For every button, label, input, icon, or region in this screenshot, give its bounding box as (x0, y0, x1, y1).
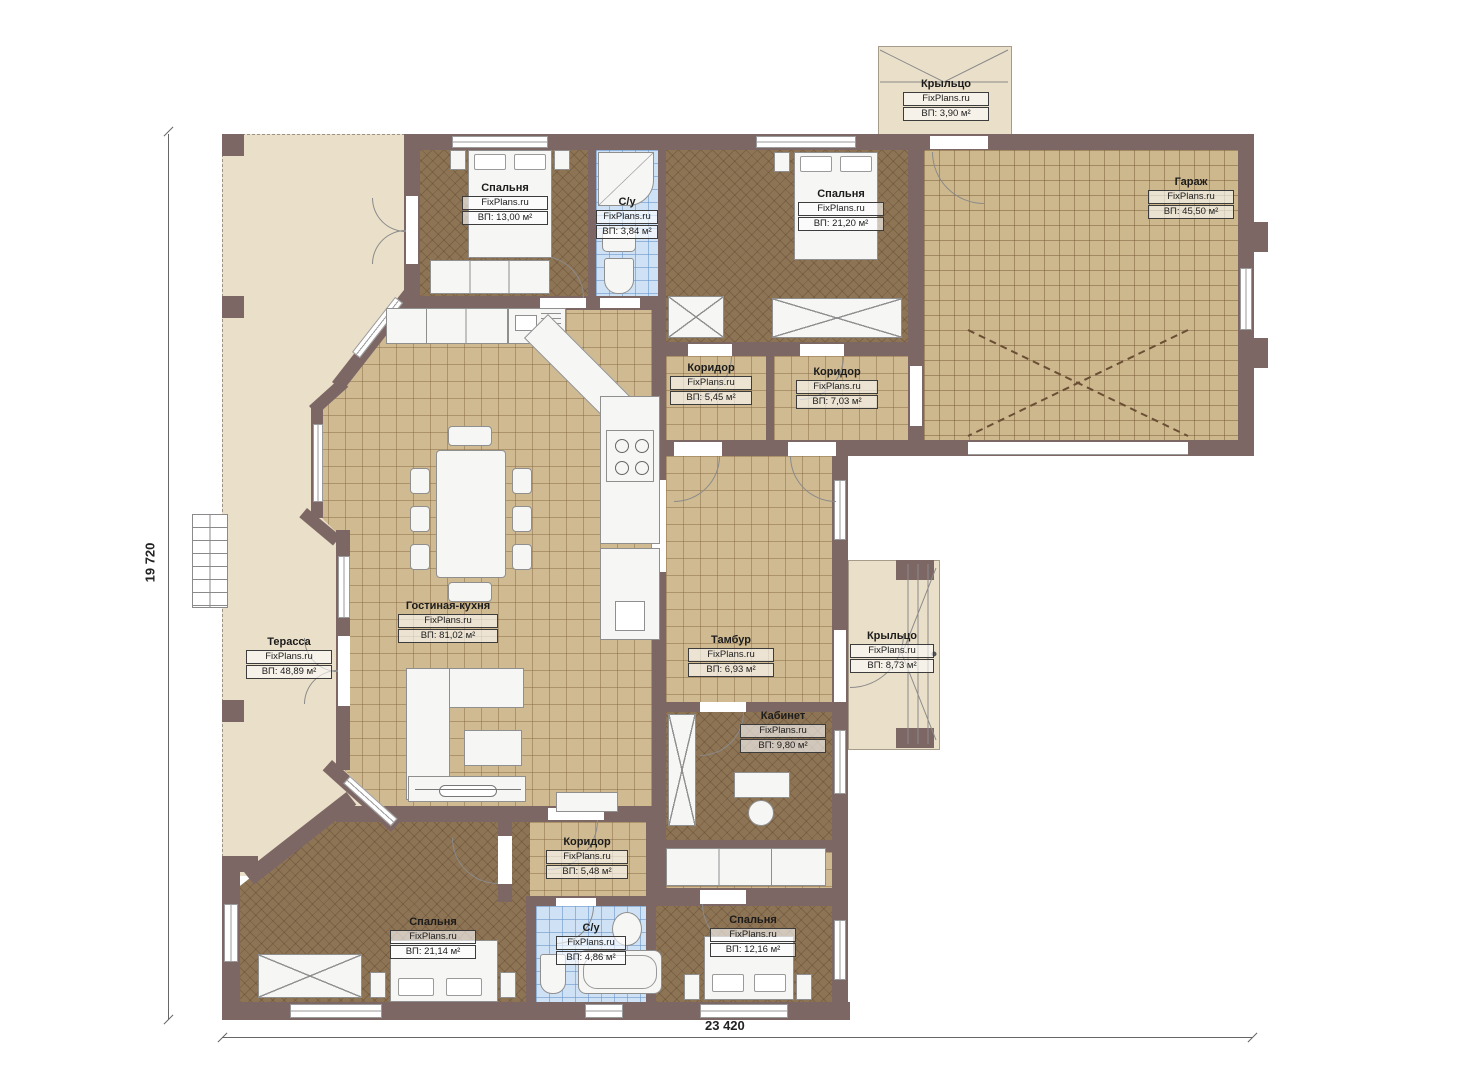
window (756, 136, 856, 148)
pillow (754, 974, 786, 992)
wardrobe (772, 298, 902, 338)
wardrobe (258, 954, 362, 998)
room-area: ВП: 5,45 м² (670, 391, 752, 405)
tv-stand (408, 776, 526, 802)
pillow (800, 156, 832, 172)
watermark: FixPlans.ru (556, 936, 626, 950)
pillow (446, 978, 482, 996)
terrace-pillar (222, 134, 244, 156)
door-opening (834, 630, 846, 702)
room-name: Крыльцо (850, 630, 934, 643)
door-opening (930, 136, 988, 149)
wall-segment (646, 822, 666, 896)
nightstand (370, 972, 386, 998)
nightstand (684, 974, 700, 1000)
room-area: ВП: 3,90 м² (903, 107, 989, 121)
room-label-porch-right: Крыльцо FixPlans.ru ВП: 8,73 м² (850, 630, 934, 673)
pillow (474, 154, 506, 170)
door-opening (498, 836, 512, 884)
room-label-bathroom-1: С/у FixPlans.ru ВП: 3,84 м² (596, 196, 658, 239)
room-name: Крыльцо (903, 78, 989, 91)
wardrobe (668, 296, 724, 338)
chair (410, 506, 430, 532)
wall-segment (526, 896, 536, 1002)
door-opening (338, 636, 350, 706)
room-area: ВП: 12,16 м² (710, 943, 796, 957)
office-chair (748, 800, 774, 826)
room-name: Тамбур (688, 634, 774, 647)
room-label-terrace: Терасса FixPlans.ru ВП: 48,89 м² (246, 636, 332, 679)
bench (556, 792, 618, 812)
watermark: FixPlans.ru (246, 650, 332, 664)
watermark: FixPlans.ru (670, 376, 752, 390)
room-label-corridor-1: Коридор FixPlans.ru ВП: 5,45 м² (670, 362, 752, 405)
door-opening (700, 890, 746, 904)
wall-stub (1254, 338, 1268, 368)
pillow (712, 974, 744, 992)
desk (734, 772, 790, 798)
pillow (514, 154, 546, 170)
room-name: Спальня (462, 182, 548, 195)
room-area: ВП: 81,02 м² (398, 629, 498, 643)
window (313, 424, 323, 502)
chair (448, 582, 492, 602)
room-label-garage: Гараж FixPlans.ru ВП: 45,50 м² (1148, 176, 1234, 219)
window (290, 1004, 382, 1018)
room-name: Коридор (796, 366, 878, 379)
room-name: Гостиная-кухня (398, 600, 498, 613)
room-label-bedroom-2: Спальня FixPlans.ru ВП: 21,20 м² (798, 188, 884, 231)
kitchen-counter (600, 548, 660, 640)
room-name: Спальня (798, 188, 884, 201)
watermark: FixPlans.ru (798, 202, 884, 216)
room-name: С/у (556, 922, 626, 935)
room-area: ВП: 8,73 м² (850, 659, 934, 673)
watermark: FixPlans.ru (1148, 190, 1234, 204)
room-area: ВП: 21,14 м² (390, 945, 476, 959)
chair (410, 544, 430, 570)
room-label-bathroom-2: С/у FixPlans.ru ВП: 4,86 м² (556, 922, 626, 965)
chair (410, 468, 430, 494)
wall-segment (658, 150, 666, 296)
terrace-pillar (222, 296, 244, 318)
room-area: ВП: 3,84 м² (596, 225, 658, 239)
toilet (604, 258, 634, 294)
watermark: FixPlans.ru (462, 196, 548, 210)
watermark: FixPlans.ru (710, 928, 796, 942)
wardrobe (668, 714, 696, 826)
room-label-corridor-2: Коридор FixPlans.ru ВП: 7,03 м² (796, 366, 878, 409)
chair (512, 468, 532, 494)
watermark: FixPlans.ru (596, 210, 658, 224)
room-area: ВП: 21,20 м² (798, 217, 884, 231)
garage-door-opening (968, 442, 1188, 455)
wall-stub (1254, 222, 1268, 252)
room-area: ВП: 4,86 м² (556, 951, 626, 965)
room-label-living-kitchen: Гостиная-кухня FixPlans.ru ВП: 81,02 м² (398, 600, 498, 643)
nightstand (796, 974, 812, 1000)
door-opening (688, 344, 732, 356)
room-area: ВП: 48,89 м² (246, 665, 332, 679)
room-label-office: Кабинет FixPlans.ru ВП: 9,80 м² (740, 710, 826, 753)
pillow (840, 156, 872, 172)
room-name: Кабинет (740, 710, 826, 723)
door-opening (540, 298, 586, 308)
room-area: ВП: 5,48 м² (546, 865, 628, 879)
watermark: FixPlans.ru (740, 724, 826, 738)
watermark: FixPlans.ru (850, 644, 934, 658)
room-label-bedroom-3: Спальня FixPlans.ru ВП: 21,14 м² (390, 916, 476, 959)
room-name: Коридор (546, 836, 628, 849)
room-name: Гараж (1148, 176, 1234, 189)
watermark: FixPlans.ru (688, 648, 774, 662)
watermark: FixPlans.ru (390, 930, 476, 944)
door-opening (406, 196, 418, 264)
room-name: Спальня (710, 914, 796, 927)
room-name: Терасса (246, 636, 332, 649)
dimension-line-horizontal (222, 1037, 1253, 1038)
garage-marking (966, 328, 1190, 438)
room-name: Спальня (390, 916, 476, 929)
outdoor-stairs (192, 514, 228, 608)
room-area: ВП: 13,00 м² (462, 211, 548, 225)
kitchen-counter (386, 308, 508, 344)
room-area: ВП: 9,80 м² (740, 739, 826, 753)
room-name: Коридор (670, 362, 752, 375)
chair (512, 506, 532, 532)
watermark: FixPlans.ru (546, 850, 628, 864)
room-area: ВП: 7,03 м² (796, 395, 878, 409)
room-label-porch-top: Крыльцо FixPlans.ru ВП: 3,90 м² (903, 78, 989, 121)
door-opening (674, 442, 722, 456)
pillow (398, 978, 434, 996)
chair (512, 544, 532, 570)
room-label-bedroom-4: Спальня FixPlans.ru ВП: 12,16 м² (710, 914, 796, 957)
dining-table (436, 450, 506, 578)
watermark: FixPlans.ru (903, 92, 989, 106)
room-label-bedroom-1: Спальня FixPlans.ru ВП: 13,00 м² (462, 182, 548, 225)
watermark: FixPlans.ru (796, 380, 878, 394)
door-opening (800, 344, 844, 356)
window (700, 1004, 788, 1018)
coffee-table (464, 730, 522, 766)
room-label-vestibule: Тамбур FixPlans.ru ВП: 6,93 м² (688, 634, 774, 677)
floor-plan-canvas: Крыльцо FixPlans.ru ВП: 3,90 м² Спальня … (0, 0, 1474, 1080)
window (224, 904, 238, 962)
window (1240, 268, 1252, 330)
room-area: ВП: 45,50 м² (1148, 205, 1234, 219)
chair (448, 426, 492, 446)
window (834, 920, 846, 980)
door-opening (788, 442, 836, 456)
nightstand (500, 972, 516, 998)
wall-segment (652, 888, 848, 906)
nightstand (450, 150, 466, 170)
window (338, 556, 350, 618)
stove (606, 430, 654, 482)
watermark: FixPlans.ru (398, 614, 498, 628)
wall-segment (588, 150, 596, 296)
room-label-corridor-3: Коридор FixPlans.ru ВП: 5,48 м² (546, 836, 628, 879)
wall-segment (766, 356, 774, 440)
nightstand (774, 152, 790, 172)
window (452, 136, 548, 148)
dimension-width-label: 23 420 (705, 1018, 745, 1033)
dimension-height-label: 19 720 (142, 543, 157, 583)
room-name: С/у (596, 196, 658, 209)
terrace-pillar (222, 700, 244, 722)
dimension-line-vertical (168, 134, 169, 1020)
window (834, 730, 846, 794)
door-opening (556, 898, 596, 906)
nightstand (554, 150, 570, 170)
wardrobe (430, 260, 550, 294)
room-area: ВП: 6,93 м² (688, 663, 774, 677)
wardrobe (666, 848, 826, 886)
door-opening (910, 366, 922, 426)
door-opening (600, 298, 640, 308)
window (585, 1004, 623, 1018)
